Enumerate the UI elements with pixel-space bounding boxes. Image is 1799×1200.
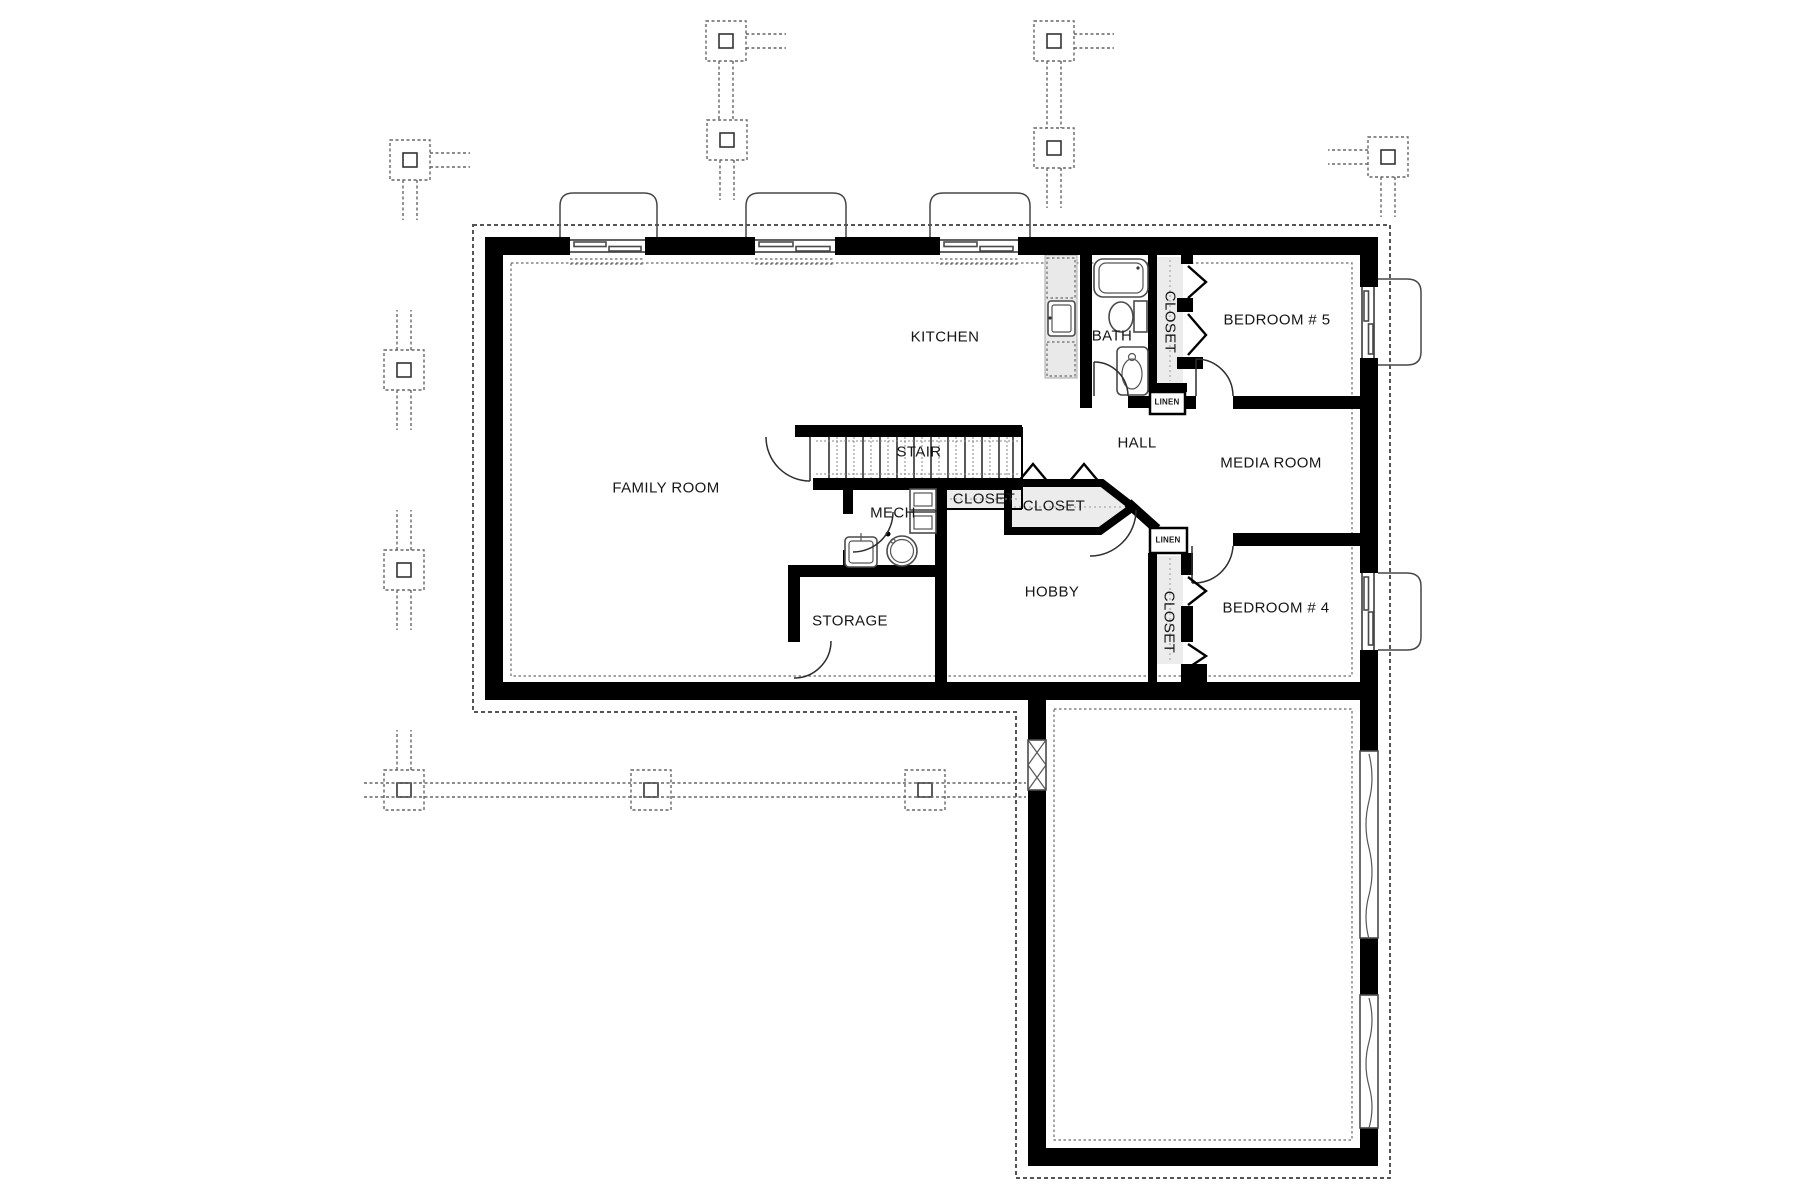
room-label-bedroom5: BEDROOM # 5: [1224, 312, 1331, 329]
shower-icon: [1117, 347, 1148, 395]
room-label-stair: STAIR: [896, 444, 941, 461]
floor-plan-drawing: [0, 0, 1799, 1200]
room-label-mech: MECH: [870, 505, 916, 522]
inner-dashed-lines: [511, 263, 1352, 1140]
room-label-family-room: FAMILY ROOM: [612, 480, 719, 497]
room-label-linen-bedroom4: LINEN: [1156, 536, 1181, 545]
laundry-sink-icon: [845, 533, 877, 567]
room-label-closet-bedroom5: CLOSET: [1162, 291, 1179, 353]
foundation-outline-dashed: [473, 225, 1390, 1178]
room-label-hall: HALL: [1117, 435, 1156, 452]
room-label-closet-bedroom4: CLOSET: [1161, 591, 1178, 653]
room-label-media-room: MEDIA ROOM: [1220, 455, 1322, 472]
kitchen-sink-icon: [1048, 301, 1075, 336]
angled-hall-wall: [1128, 503, 1157, 529]
room-label-bath: BATH: [1092, 328, 1133, 345]
room-label-bedroom4: BEDROOM # 4: [1223, 600, 1330, 617]
bathtub-icon: [1094, 259, 1148, 297]
walls: [485, 237, 1378, 1166]
room-label-kitchen: KITCHEN: [911, 329, 980, 346]
basement-wing-windows: [1028, 740, 1378, 1128]
water-heater-icon: [887, 536, 917, 566]
room-label-closet-understair: CLOSET: [953, 491, 1015, 508]
room-label-closet-hall: CLOSET: [1023, 498, 1085, 515]
room-label-storage: STORAGE: [812, 613, 888, 630]
window-well-icon: [560, 193, 1421, 650]
room-label-hobby: HOBBY: [1025, 584, 1080, 601]
window-icon: [570, 240, 1018, 264]
floor-plan: FAMILY ROOM KITCHEN BATH CLOSET BEDROOM …: [0, 0, 1799, 1200]
room-label-linen-hall: LINEN: [1155, 398, 1180, 407]
